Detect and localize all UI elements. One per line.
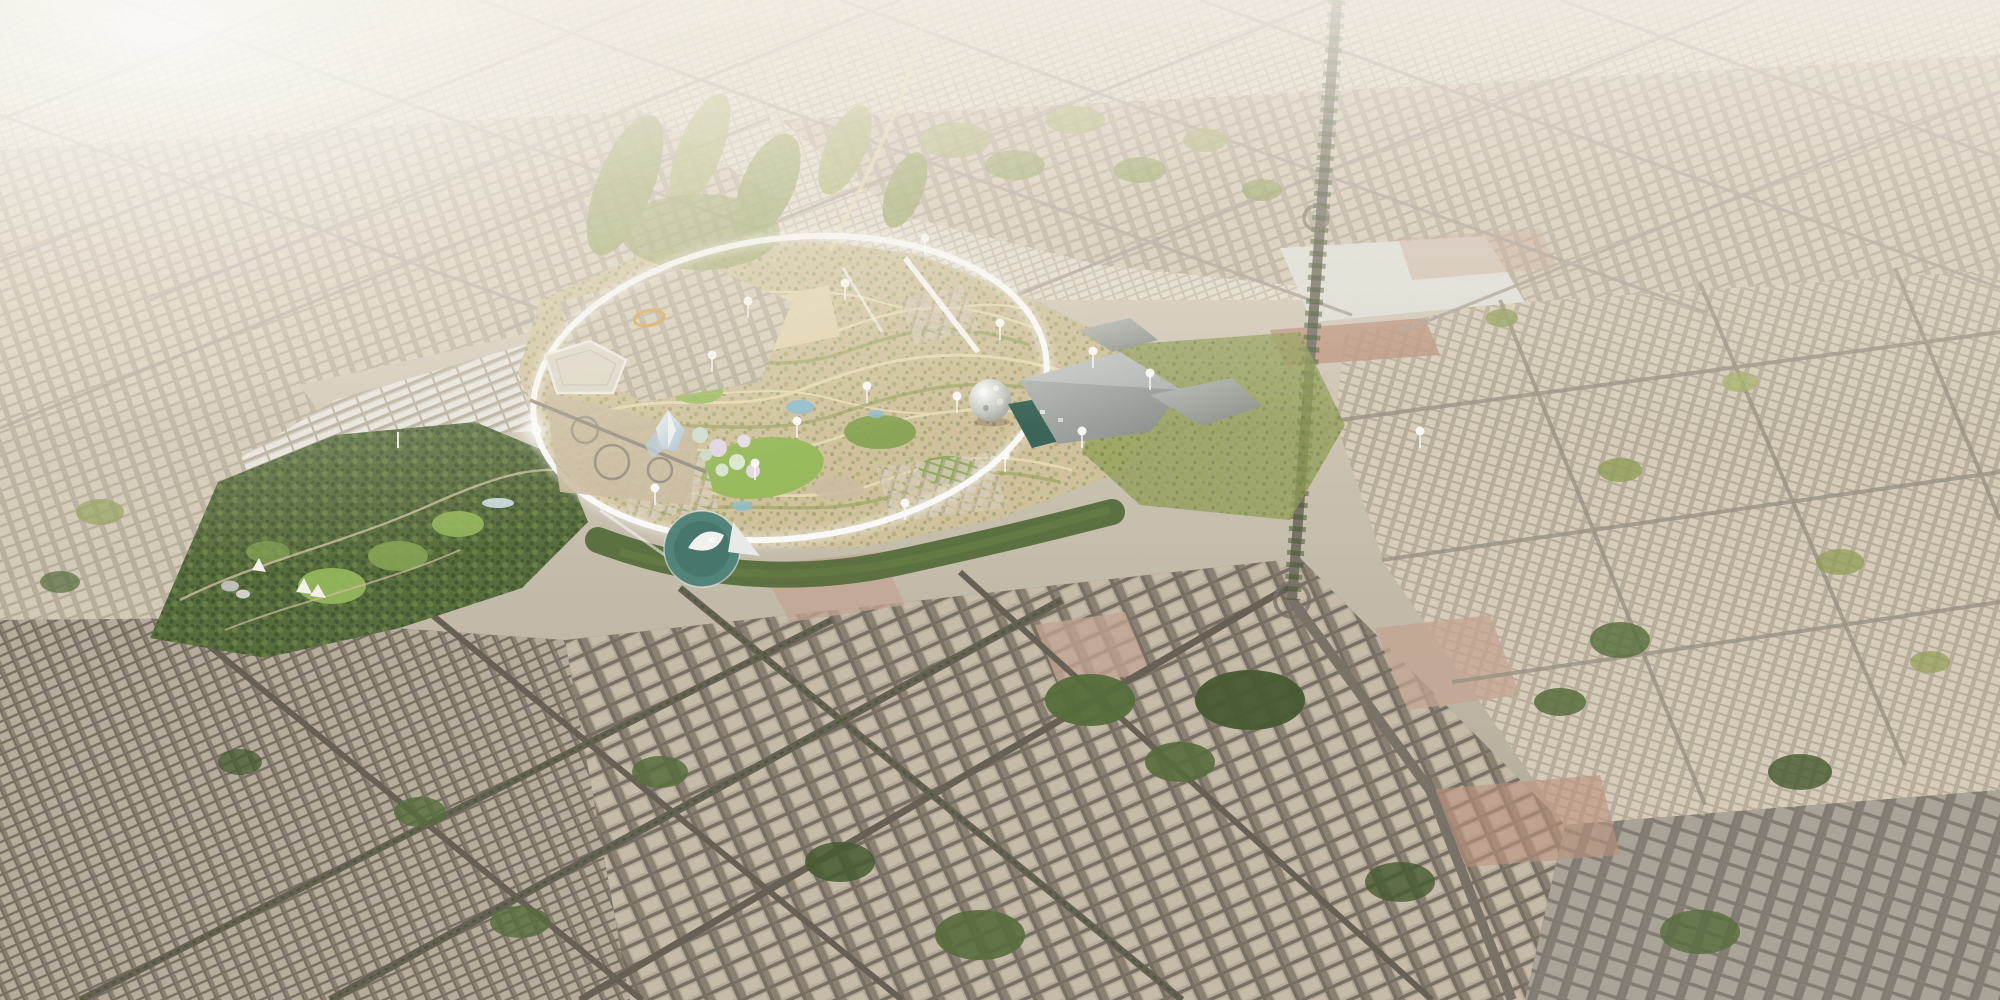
warm-tint: [0, 0, 2000, 1000]
aerial-render-stage: Aerial 3D masterplan render of a vast ur…: [0, 0, 2000, 1000]
masterplan-aerial-render: Aerial 3D masterplan render of a vast ur…: [0, 0, 2000, 1000]
